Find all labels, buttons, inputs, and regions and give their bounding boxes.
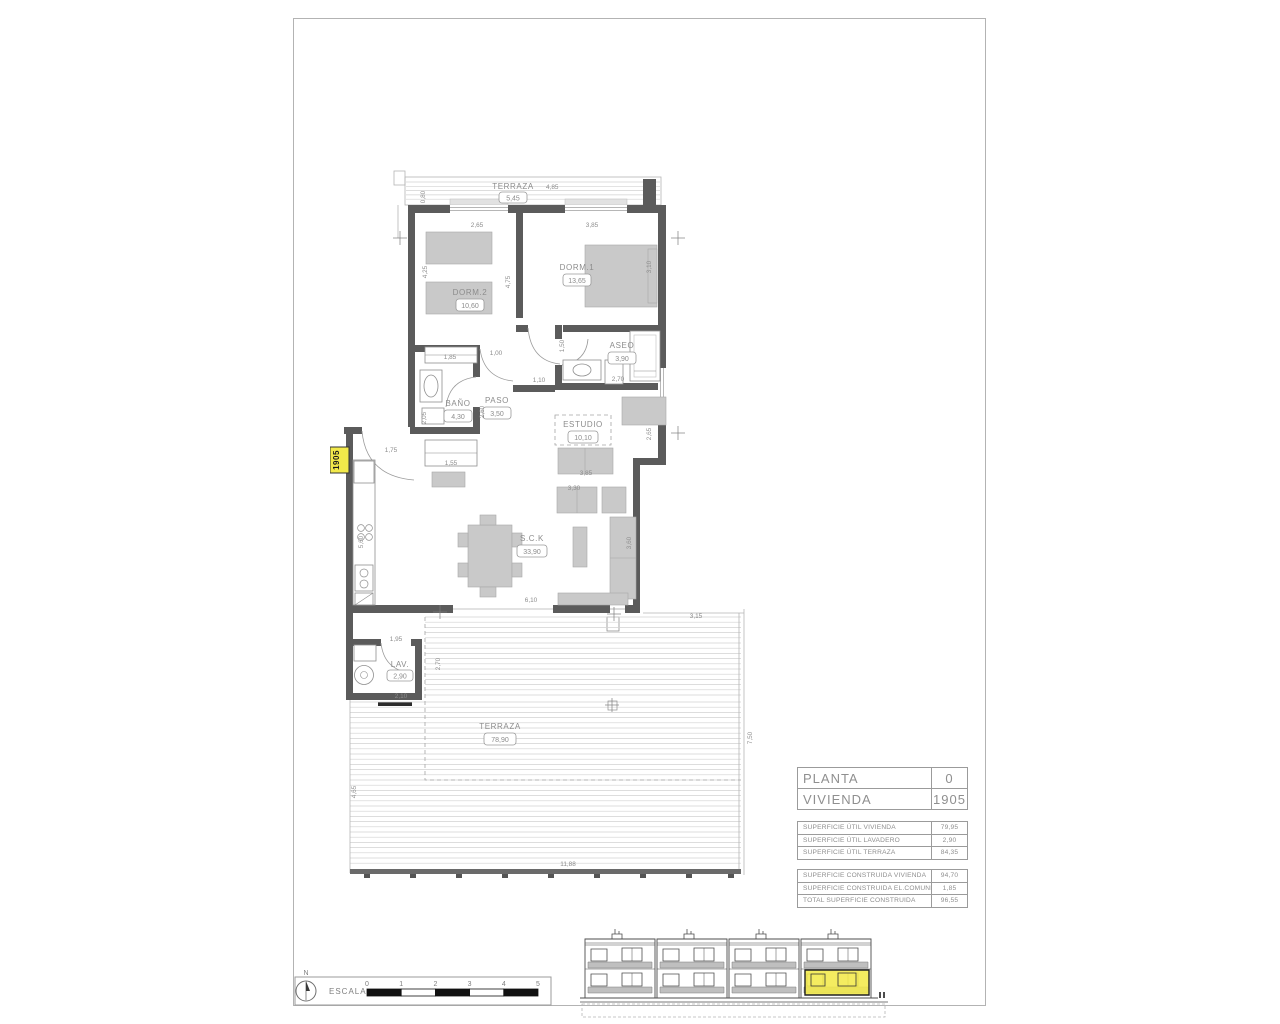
table-row: SUPERFICIE CONSTRUIDA VIVIENDA 94,70 bbox=[798, 870, 967, 882]
dimension-label: 2,10 bbox=[395, 693, 408, 700]
dimension-label: 1,10 bbox=[533, 377, 546, 384]
scale-tick: 3 bbox=[468, 981, 472, 988]
coffee-table bbox=[573, 527, 587, 567]
studio-desk bbox=[622, 397, 666, 425]
title-block-built: SUPERFICIE CONSTRUIDA VIVIENDA 94,70 SUP… bbox=[797, 869, 968, 908]
row-label: TOTAL SUPERFICIE CONSTRUIDA bbox=[798, 895, 931, 907]
svg-text:33,90: 33,90 bbox=[523, 549, 541, 556]
room-label-estudio: ESTUDIO 10,10 bbox=[563, 420, 603, 443]
bed bbox=[585, 245, 657, 307]
vivienda-value: 1905 bbox=[931, 789, 967, 809]
escala-label: ESCALA : bbox=[329, 987, 373, 996]
title-block-main: PLANTA 0 VIVIENDA 1905 bbox=[797, 767, 968, 810]
table-row: SUPERFICIE ÚTIL LAVADERO 2,90 bbox=[798, 834, 967, 847]
row-label: SUPERFICIE CONSTRUIDA VIVIENDA bbox=[798, 870, 931, 882]
table-row: TOTAL SUPERFICIE CONSTRUIDA 96,55 bbox=[798, 894, 967, 907]
room-label-dorm2: DORM.2 10,60 bbox=[453, 288, 488, 311]
dimension-label: 1,50 bbox=[559, 339, 566, 352]
laundry-shelf bbox=[354, 645, 376, 661]
row-value: 94,70 bbox=[931, 870, 967, 882]
svg-text:TERRAZA: TERRAZA bbox=[479, 722, 521, 731]
dimension-label: 3,60 bbox=[626, 536, 633, 549]
vivienda-label: VIVIENDA bbox=[798, 789, 931, 809]
svg-text:10,10: 10,10 bbox=[574, 435, 592, 442]
room-label-aseo: ASEO 3,90 bbox=[608, 341, 636, 364]
scale-bar: N ESCALA : 0 1 2 3 4 5 bbox=[293, 958, 563, 1018]
elevation-dashed-outline bbox=[582, 1004, 885, 1017]
svg-text:S.C.K: S.C.K bbox=[520, 534, 544, 543]
dimension-label: 4,65 bbox=[351, 785, 358, 798]
terrace-step bbox=[607, 617, 619, 631]
row-label: SUPERFICIE ÚTIL VIVIENDA bbox=[798, 822, 931, 834]
dimension-label: 2,05 bbox=[421, 411, 428, 424]
dimension-label: 3,85 bbox=[586, 222, 599, 229]
scale-tick: 4 bbox=[502, 981, 506, 988]
room-label-terraza-top: TERRAZA 4,85 5,45 bbox=[492, 182, 559, 203]
row-value: 2,90 bbox=[931, 835, 967, 847]
sideboard bbox=[558, 593, 628, 605]
room-label-terraza-main: TERRAZA 78,90 bbox=[479, 722, 521, 745]
svg-text:DORM.2: DORM.2 bbox=[453, 288, 488, 297]
svg-text:PASO: PASO bbox=[485, 396, 509, 405]
vent-grille bbox=[378, 702, 412, 706]
svg-text:10,60: 10,60 bbox=[461, 303, 479, 310]
rug bbox=[432, 472, 465, 487]
planta-label: PLANTA bbox=[798, 768, 931, 788]
room-label-lav: LAV. 2,90 bbox=[387, 660, 413, 681]
floor-plan: 1905 TERRAZA 4,85 5,45 DORM.2 10,60 DORM… bbox=[330, 165, 770, 885]
room-label-bano: BAÑO 4,30 bbox=[444, 399, 472, 422]
highlighted-unit bbox=[805, 970, 869, 995]
svg-text:LAV.: LAV. bbox=[391, 660, 409, 669]
svg-text:4,30: 4,30 bbox=[451, 414, 465, 421]
room-label-paso: PASO 3,50 bbox=[483, 396, 511, 419]
row-label: SUPERFICIE CONSTRUIDA EL.COMUNES bbox=[798, 883, 931, 895]
table-row: SUPERFICIE ÚTIL TERRAZA 84,35 bbox=[798, 846, 967, 859]
dimension-label: 4,75 bbox=[505, 275, 512, 288]
doors bbox=[362, 328, 588, 673]
dimension-label: 1,95 bbox=[390, 636, 403, 643]
dimension-label: 1,75 bbox=[385, 447, 398, 454]
svg-text:3,90: 3,90 bbox=[615, 356, 629, 363]
house-module bbox=[729, 929, 799, 998]
dimension-label: 2,70 bbox=[435, 657, 442, 670]
dimension-label: 4,85 bbox=[546, 184, 559, 191]
bed bbox=[426, 232, 492, 264]
room-label-dorm1: DORM.1 13,65 bbox=[560, 263, 595, 286]
svg-text:ESTUDIO: ESTUDIO bbox=[563, 420, 603, 429]
planta-row: PLANTA 0 bbox=[798, 768, 967, 788]
terrace-pillar bbox=[643, 179, 656, 205]
dimension-label: 5,60 bbox=[358, 535, 365, 548]
room-label-sck: S.C.K 33,90 bbox=[517, 534, 547, 557]
scale-tick: 1 bbox=[399, 981, 403, 988]
aseo-vanity bbox=[563, 360, 601, 380]
dimension-label: 4,25 bbox=[422, 265, 429, 278]
unit-number: 1905 bbox=[332, 450, 341, 470]
dimension-label: 3,15 bbox=[690, 613, 703, 620]
vivienda-row: VIVIENDA 1905 bbox=[798, 788, 967, 809]
dimension-label: 0,80 bbox=[420, 190, 427, 203]
row-value: 79,95 bbox=[931, 822, 967, 834]
dimension-label: 2,70 bbox=[612, 376, 625, 383]
dimension-label: 6,10 bbox=[525, 597, 538, 604]
dimension-label: 7,50 bbox=[747, 731, 754, 744]
dimension-label: 2,65 bbox=[471, 222, 484, 229]
scale-tick: 5 bbox=[536, 981, 540, 988]
scale-tick: 2 bbox=[433, 981, 437, 988]
row-value: 84,35 bbox=[931, 847, 967, 859]
row-label: SUPERFICIE ÚTIL TERRAZA bbox=[798, 847, 931, 859]
dimension-label: 1,85 bbox=[444, 354, 457, 361]
svg-text:DORM.1: DORM.1 bbox=[560, 263, 595, 272]
row-value: 1,85 bbox=[931, 883, 967, 895]
row-label: SUPERFICIE ÚTIL LAVADERO bbox=[798, 835, 931, 847]
dimension-label: 3,10 bbox=[646, 260, 653, 273]
scale-bar-segments bbox=[367, 989, 538, 996]
north-label: N bbox=[303, 970, 308, 977]
svg-text:13,65: 13,65 bbox=[568, 278, 586, 285]
planta-value: 0 bbox=[931, 768, 967, 788]
dimension-label: 3,30 bbox=[568, 485, 581, 492]
dining-table bbox=[468, 525, 512, 587]
fridge bbox=[354, 461, 374, 483]
house-module bbox=[657, 929, 727, 998]
bed-pillow bbox=[648, 249, 657, 303]
svg-text:2,90: 2,90 bbox=[393, 674, 407, 681]
dimension-label: 1,55 bbox=[445, 460, 458, 467]
svg-text:78,90: 78,90 bbox=[491, 737, 509, 744]
washing-machine bbox=[355, 666, 374, 685]
row-value: 96,55 bbox=[931, 895, 967, 907]
building-elevation bbox=[580, 928, 892, 1020]
main-terrace bbox=[350, 609, 744, 878]
dimension-label: 1,00 bbox=[490, 350, 503, 357]
title-block-util: SUPERFICIE ÚTIL VIVIENDA 79,95 SUPERFICI… bbox=[797, 821, 968, 860]
table-row: SUPERFICIE ÚTIL VIVIENDA 79,95 bbox=[798, 822, 967, 834]
dimension-label: 2,60 bbox=[479, 405, 486, 418]
svg-text:5,45: 5,45 bbox=[506, 196, 520, 203]
dimension-label: 2,65 bbox=[646, 427, 653, 440]
drawing-sheet: 1905 TERRAZA 4,85 5,45 DORM.2 10,60 DORM… bbox=[0, 0, 1280, 1024]
svg-text:3,50: 3,50 bbox=[490, 411, 504, 418]
svg-text:ASEO: ASEO bbox=[610, 341, 635, 350]
kitchen-fixtures bbox=[353, 460, 412, 706]
unit-highlight-tag: 1905 bbox=[330, 447, 349, 473]
dimension-label: 3,85 bbox=[580, 470, 593, 477]
house-module bbox=[585, 929, 655, 998]
side-table bbox=[602, 487, 626, 513]
svg-text:TERRAZA: TERRAZA bbox=[492, 182, 534, 191]
table-row: SUPERFICIE CONSTRUIDA EL.COMUNES 1,85 bbox=[798, 882, 967, 895]
scale-tick: 0 bbox=[365, 981, 369, 988]
svg-text:BAÑO: BAÑO bbox=[445, 399, 470, 408]
dimension-label: 11,88 bbox=[560, 861, 576, 868]
